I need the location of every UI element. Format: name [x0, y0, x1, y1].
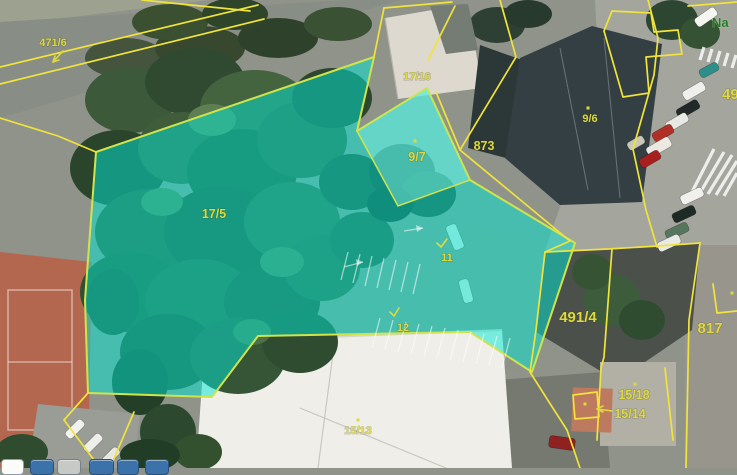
parcel-label: 17/16: [403, 71, 431, 83]
parcel-label: 11: [441, 252, 453, 264]
aerial-map: 471/6 17/16 9/7 873 17/5 9/6 11 12 491/4…: [0, 0, 737, 468]
map-tool-button-1[interactable]: [1, 459, 24, 475]
parcel-label: 12: [397, 322, 409, 334]
parcel-label: 817: [697, 320, 722, 337]
map-app: { "map": { "parcel_labels": [ {"name": "…: [0, 0, 737, 468]
parcel-label: 873: [474, 139, 495, 153]
survey-dot: [634, 383, 637, 386]
map-tool-button-2[interactable]: [30, 459, 54, 475]
parcel-label: 17/5: [202, 207, 226, 221]
survey-dot: [357, 419, 360, 422]
survey-dot: [731, 292, 734, 295]
parcel-label: 9/6: [582, 113, 597, 125]
survey-dot: [584, 403, 587, 406]
map-viewport[interactable]: 471/6 17/16 9/7 873 17/5 9/6 11 12 491/4…: [0, 0, 737, 468]
parcel-label: 49: [722, 86, 737, 103]
parcel-label: 471/6: [39, 37, 67, 49]
parcel-label: 15/18: [618, 388, 649, 402]
parcel-label: 15/14: [614, 407, 645, 421]
white-building: [385, 4, 482, 99]
parcel-label: 15/13: [344, 425, 372, 437]
parcel-label: 491/4: [559, 309, 597, 326]
parcel-label: 9/7: [408, 150, 425, 164]
street-name-label: Na: [712, 15, 729, 30]
map-tool-button-4[interactable]: [89, 459, 114, 475]
survey-dot: [587, 107, 590, 110]
map-tool-button-5[interactable]: [117, 459, 139, 475]
map-tool-button-3[interactable]: [57, 459, 81, 475]
survey-dot: [414, 140, 417, 143]
map-tool-button-6[interactable]: [145, 459, 169, 475]
